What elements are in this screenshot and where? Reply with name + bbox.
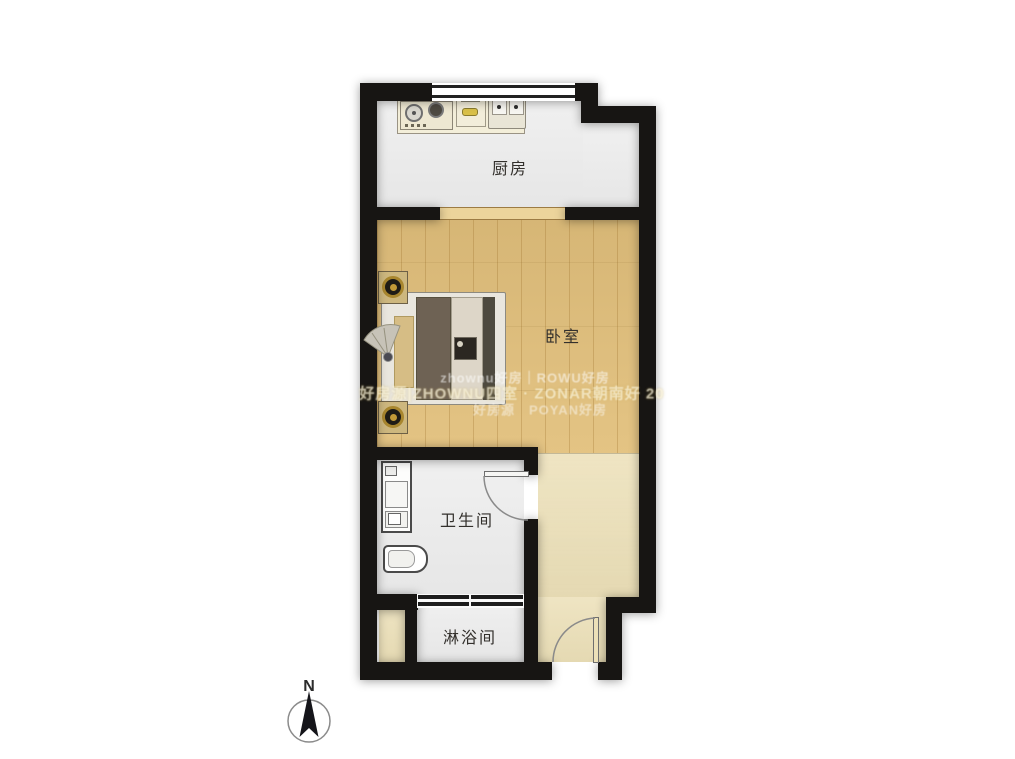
shower-sliding-panel-3 — [418, 602, 469, 606]
wall-top-left — [360, 83, 432, 101]
shower-sliding-panel-2 — [471, 595, 523, 599]
bathroom-door-leaf — [484, 471, 529, 477]
floor-plan: 厨房 卧室 卫生间 淋浴间 N zhownu好房｜ROWU好房 好房源|ZHOW… — [0, 0, 1015, 759]
wall-left — [360, 83, 377, 680]
shower-label: 淋浴间 — [443, 624, 497, 648]
wall-bottom-right — [598, 662, 622, 680]
wall-right — [639, 106, 656, 597]
wall-bathroom-top — [360, 447, 538, 460]
entry-door-leaf — [593, 617, 599, 663]
bathroom-label: 卫生间 — [440, 507, 494, 531]
wall-niche-right — [405, 610, 417, 662]
wall-bath-entry-lower — [524, 519, 538, 662]
wall-kitchen-divider-left — [377, 207, 440, 220]
wall-shower-left — [377, 594, 418, 610]
compass-north-label: N — [303, 678, 315, 696]
bedroom-label: 卧室 — [545, 323, 581, 347]
kitchen-window-line-inner — [432, 95, 575, 98]
kitchen-window-line-outer — [432, 85, 575, 88]
shower-sliding-panel-4 — [471, 602, 523, 606]
shower-sliding-panel-1 — [418, 595, 469, 599]
wall-kitchen-divider-right — [565, 207, 639, 220]
watermark-line-3: 好房源 POYAN好房 — [473, 400, 607, 419]
kitchen-label: 厨房 — [492, 155, 528, 179]
wall-bottom-left — [360, 662, 552, 680]
